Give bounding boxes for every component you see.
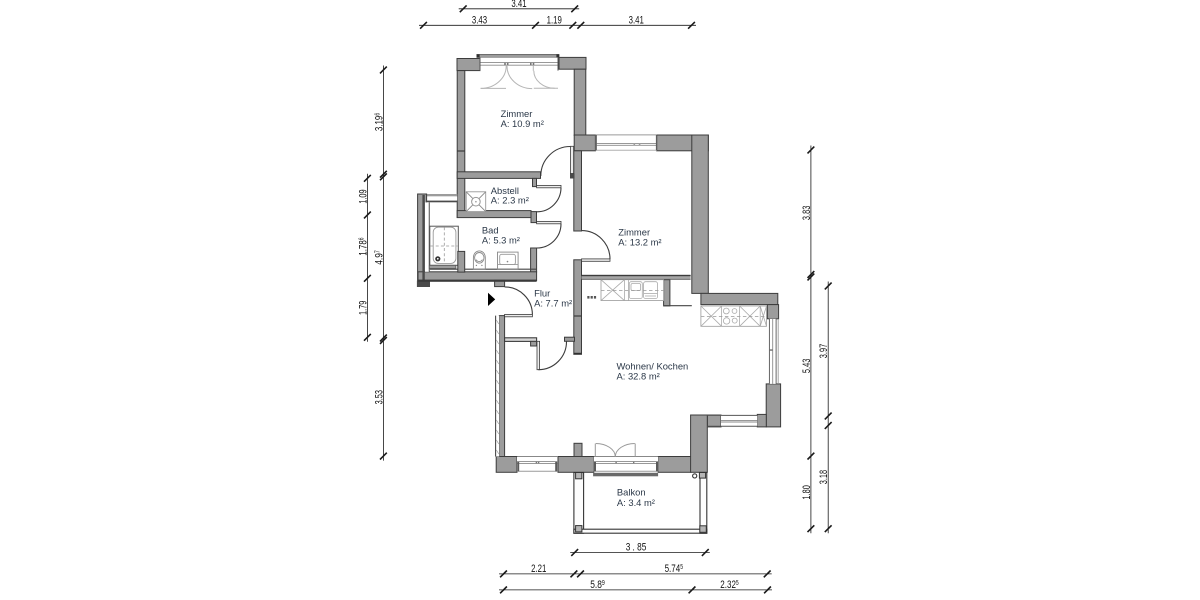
svg-text:2.21: 2.21 (531, 563, 546, 575)
svg-text:A: 3.4 m²: A: 3.4 m² (617, 497, 655, 508)
svg-text:1.80: 1.80 (801, 485, 813, 499)
svg-text:3.41: 3.41 (511, 0, 526, 10)
svg-text:3.43: 3.43 (472, 14, 487, 26)
svg-text:3.83: 3.83 (801, 206, 813, 220)
svg-text:3.97: 3.97 (818, 344, 830, 358)
svg-text:A: 5.3 m²: A: 5.3 m² (482, 235, 520, 246)
svg-text:A: 10.9 m²: A: 10.9 m² (501, 118, 544, 129)
svg-text:Balkon: Balkon (617, 487, 646, 498)
svg-text:A: 2.3 m²: A: 2.3 m² (491, 194, 529, 205)
svg-text:3 . 85: 3 . 85 (626, 542, 647, 554)
svg-text:3.53: 3.53 (373, 390, 385, 404)
svg-text:1.79: 1.79 (357, 301, 369, 315)
svg-text:A: 7.7 m²: A: 7.7 m² (534, 297, 572, 308)
svg-text:3.41: 3.41 (629, 14, 644, 26)
svg-text:5.43: 5.43 (801, 359, 813, 373)
svg-text:1.09: 1.09 (357, 189, 369, 203)
svg-text:A: 32.8 m²: A: 32.8 m² (617, 370, 660, 381)
svg-text:3.18: 3.18 (818, 470, 830, 484)
svg-text:A: 13.2 m²: A: 13.2 m² (618, 237, 661, 248)
svg-text:1.19: 1.19 (547, 14, 562, 26)
